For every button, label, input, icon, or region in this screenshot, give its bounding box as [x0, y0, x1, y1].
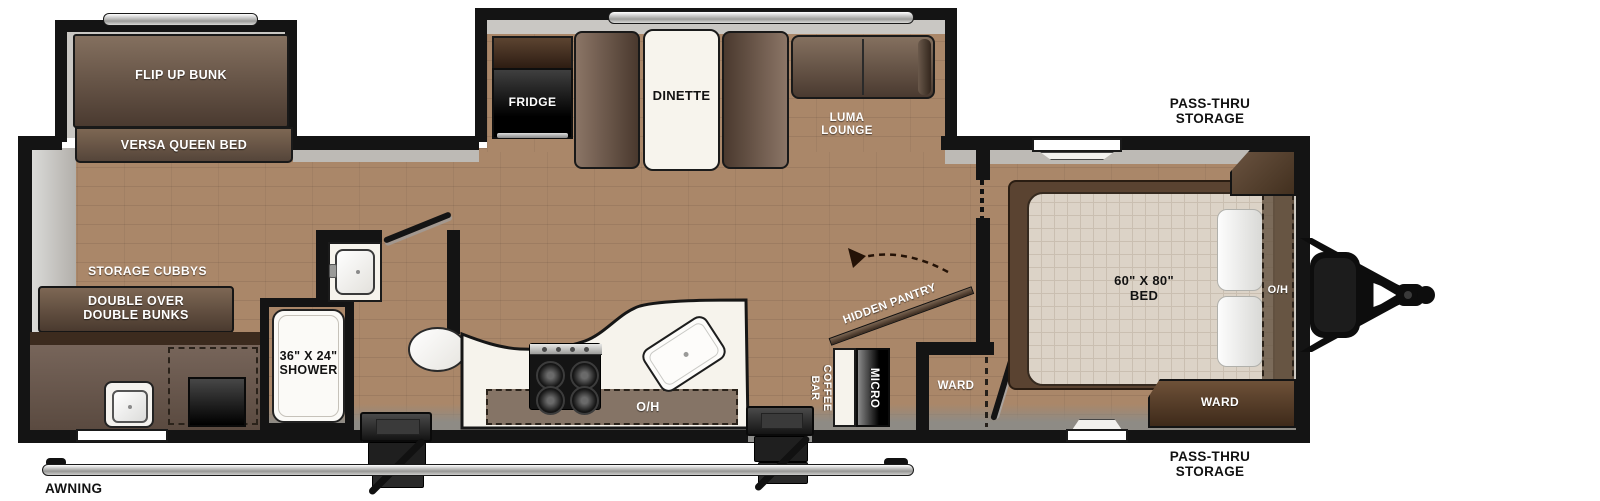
bath-sink-basin [335, 249, 375, 295]
stove-control-panel [530, 344, 602, 355]
bedroom-ward-label: WARD [1180, 396, 1260, 409]
kitchen-slide-wall-right [945, 8, 957, 142]
pillow [1217, 296, 1263, 367]
lounge-armrest [918, 39, 931, 95]
dinette-label: DINETTE [645, 89, 718, 104]
awning-label: AWNING [45, 481, 135, 496]
flip-up-bunk-label: FLIP UP BUNK [75, 68, 287, 82]
stove [529, 343, 601, 410]
shower-pan: 36" X 24" SHOWER [272, 309, 345, 423]
fridge-counter [492, 36, 573, 69]
bedroom-ward: WARD [1148, 379, 1296, 428]
stove-burner [536, 386, 565, 415]
shower-label: 36" X 24" SHOWER [268, 349, 349, 377]
bunk-slide-topper [103, 13, 258, 26]
dinette-bench [574, 31, 640, 169]
camp-sink-drain [128, 405, 132, 409]
bunk-room-window [76, 429, 168, 442]
awning-bar [42, 464, 914, 476]
double-bunks-label: DOUBLE OVER DOUBLE BUNKS [40, 294, 232, 322]
camp-kitchen-appliance [188, 377, 246, 427]
bedroom-window-top-sill [1040, 152, 1114, 160]
pass-thru-storage-label-bottom: PASS-THRU STORAGE [1140, 449, 1280, 479]
fridge-base [497, 133, 568, 138]
kitchen-slide-topper [608, 11, 914, 24]
bath-sink-wall-top [316, 230, 382, 242]
trailer-hitch [1300, 230, 1440, 360]
pass-thru-storage-label-top: PASS-THRU STORAGE [1140, 96, 1280, 126]
storage-cubbys-label: STORAGE CUBBYS [60, 265, 235, 278]
fridge: FRIDGE [492, 68, 573, 139]
double-bunks: DOUBLE OVER DOUBLE BUNKS [38, 286, 234, 333]
kitchen-overhead-label: O/H [618, 400, 678, 414]
bath-sink-counter [328, 242, 382, 302]
bath-sink-drain [356, 270, 360, 274]
bedroom-overhead-label: O/H [1260, 284, 1296, 296]
dinette-bench [722, 31, 789, 169]
pantry-door-swing-arc [820, 240, 990, 350]
fridge-label: FRIDGE [494, 96, 571, 109]
bath-sink-faucet [329, 264, 337, 278]
bedroom-window-top [1032, 138, 1122, 152]
entry-step [746, 406, 814, 436]
dinette-table: DINETTE [643, 29, 720, 171]
bunk-base-shelf [30, 332, 262, 345]
microwave-label: MICRO [866, 353, 880, 423]
kitchen-overhead-cabinet: O/H [486, 389, 738, 425]
camp-kitchen-sink [104, 381, 154, 428]
top-wall-mid [293, 136, 479, 150]
versa-queen-bed-label: VERSA QUEEN BED [77, 138, 291, 152]
luma-lounge-label: LUMA LOUNGE [807, 112, 887, 138]
coffee-bar-counter [833, 348, 856, 427]
bedroom-partition-top [976, 148, 990, 180]
lounge-cushion-divider [862, 39, 864, 95]
bed-label: 60" X 80" BED [1099, 274, 1189, 303]
top-wall-bedroom [941, 136, 1310, 150]
flip-up-bunk: FLIP UP BUNK [73, 34, 289, 128]
bedroom-sliding-door [980, 180, 984, 218]
bedroom-window-bottom [1066, 429, 1128, 442]
mid-ward-label: WARD [926, 380, 986, 393]
luma-lounge-sofa [791, 35, 935, 99]
bunk-slide-wall-left [55, 20, 67, 142]
pillow [1217, 209, 1263, 291]
rv-floorplan: FLIP UP BUNK VERSA QUEEN BED STORAGE CUB… [0, 0, 1600, 501]
versa-queen-bed: VERSA QUEEN BED [75, 127, 293, 163]
stove-burner [570, 386, 599, 415]
top-wall-shade-mid [293, 150, 479, 162]
kitchen-slide-wall-left [475, 8, 487, 142]
